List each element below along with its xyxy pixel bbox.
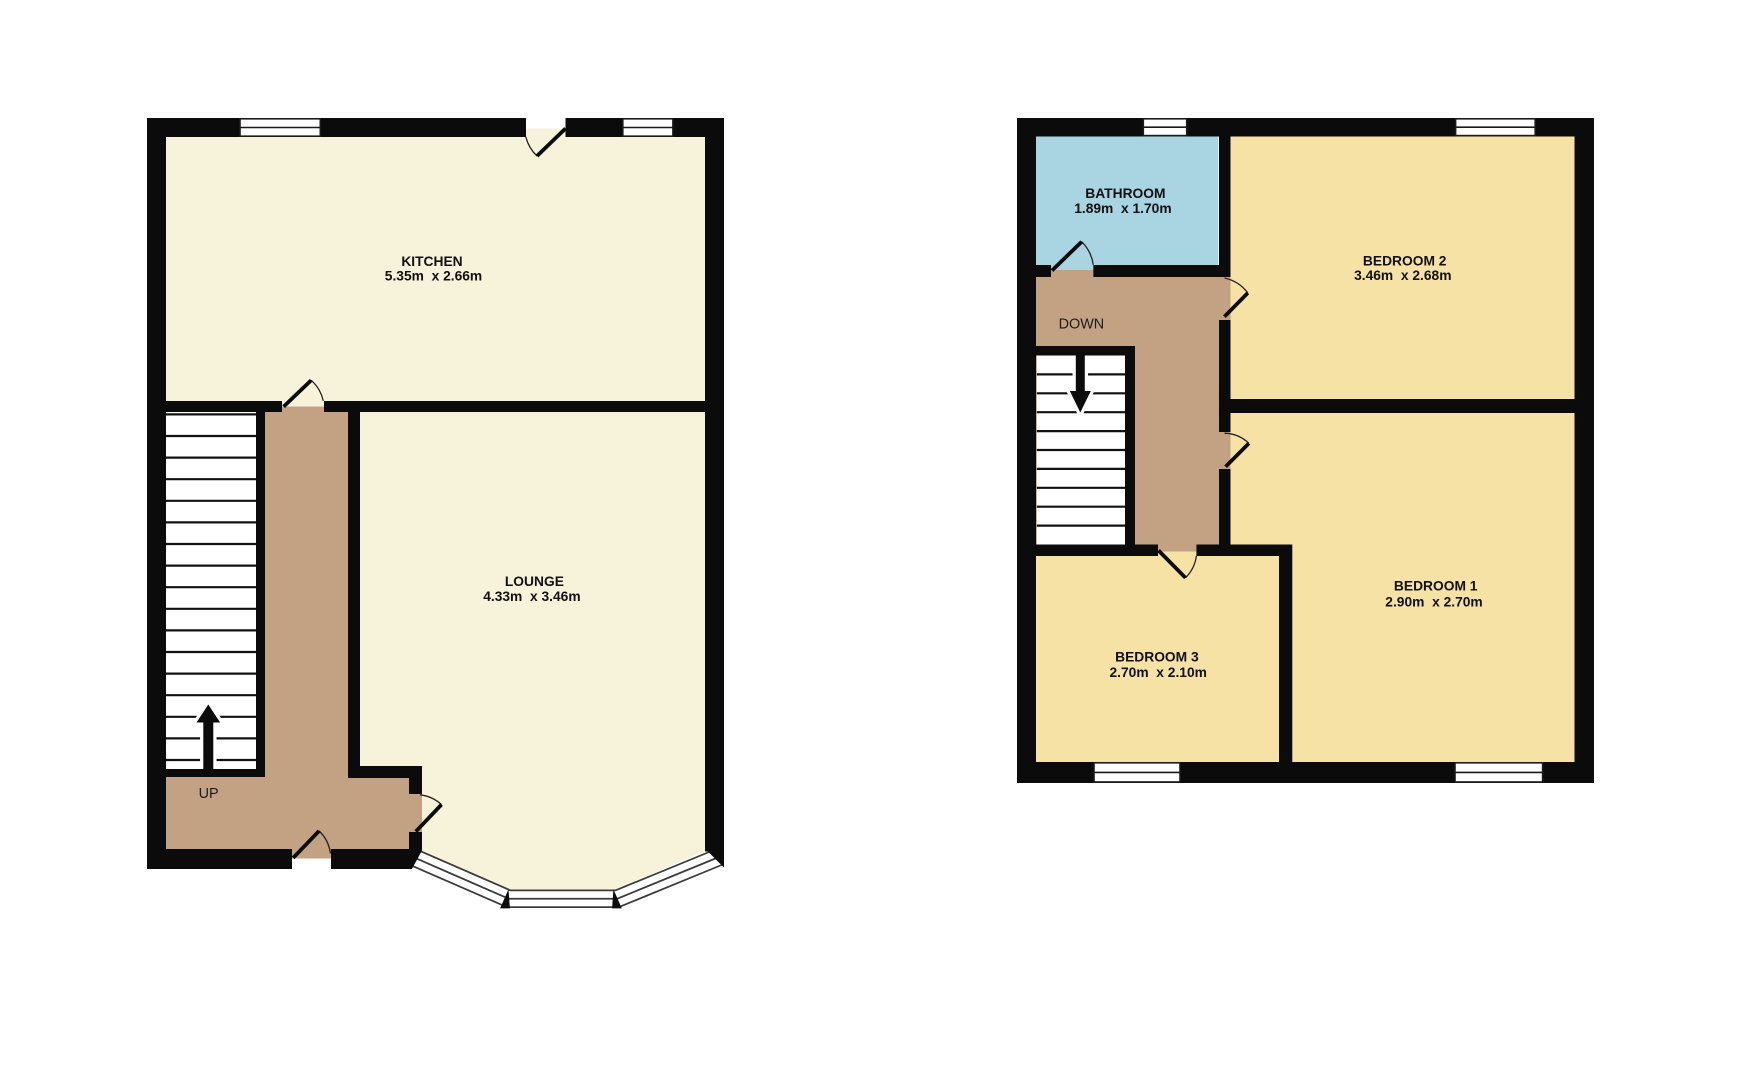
svg-text:4.33m x 3.46m: 4.33m x 3.46m [483,589,580,604]
svg-text:1.89m x 1.70m: 1.89m x 1.70m [1074,201,1171,216]
svg-text:BEDROOM 2: BEDROOM 2 [1363,254,1447,269]
svg-text:BEDROOM 3: BEDROOM 3 [1115,650,1199,665]
svg-text:BATHROOM: BATHROOM [1085,186,1165,201]
svg-text:LOUNGE: LOUNGE [505,574,564,589]
svg-text:2.90m x 2.70m: 2.90m x 2.70m [1385,594,1482,609]
svg-text:5.35m x 2.66m: 5.35m x 2.66m [385,269,482,284]
svg-text:BEDROOM 1: BEDROOM 1 [1394,578,1478,593]
svg-text:UP: UP [199,786,219,802]
svg-text:2.70m x 2.10m: 2.70m x 2.10m [1109,665,1206,680]
svg-text:DOWN: DOWN [1059,317,1105,333]
svg-text:KITCHEN: KITCHEN [401,254,462,269]
svg-text:3.46m x 2.68m: 3.46m x 2.68m [1354,268,1451,283]
